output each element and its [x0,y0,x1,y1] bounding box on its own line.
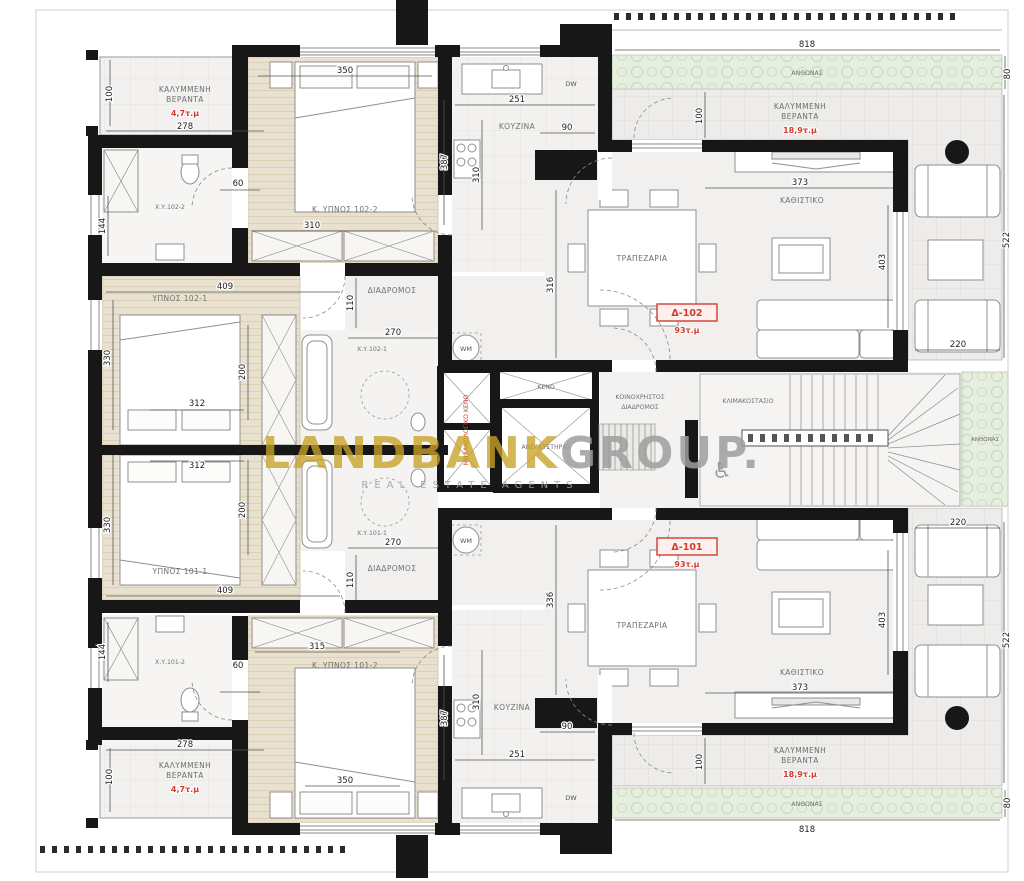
planter-right-label: ΑΝΘΩΝΑΣ [971,437,1000,443]
svg-text:315: 315 [309,642,325,652]
svg-text:270: 270 [385,328,401,338]
unit-top-area: 93τ.μ [674,326,699,335]
kitchen-top-label: ΚΟΥΖΙΝΑ [499,122,536,131]
svg-text:144: 144 [98,644,108,660]
svg-text:60: 60 [233,179,244,189]
common-corridor-label-2: ΔΙΑΔΡΟΜΟΣ [621,404,658,411]
veranda-big-top-l1: ΚΑΛΥΜΜΕΝΗ [774,102,826,111]
svg-text:387: 387 [440,154,450,170]
living-bottom-label: ΚΑΘΙΣΤΙΚΟ [780,668,824,677]
floor-plan-canvas: WM WM ♿ [0,0,1024,881]
veranda-big-bottom-area: 18,9τ.μ [783,770,817,779]
svg-text:403: 403 [878,612,888,628]
svg-text:818: 818 [799,40,815,50]
dining-bottom-label: ΤΡΑΠΕΖΑΡΙΑ [616,621,668,630]
svg-text:409: 409 [217,282,233,292]
planter-top-label: ΑΝΘΩΝΑΣ [791,70,822,77]
svg-text:312: 312 [189,461,205,471]
svg-text:350: 350 [337,66,353,76]
bed2-top-label: Κ. ΥΠΝΟΣ 102-2 [312,205,378,214]
veranda-small-bottom-l2: ΒΕΡΑΝΤΑ [166,771,204,780]
svg-text:220: 220 [950,518,966,528]
svg-text:330: 330 [103,517,113,533]
svg-text:100: 100 [695,108,705,124]
veranda-small-bottom-area: 4,7τ.μ [171,785,199,794]
svg-text:387: 387 [440,710,450,726]
kitchen-bottom-label: ΚΟΥΖΙΝΑ [494,703,531,712]
svg-text:310: 310 [304,221,320,231]
svg-text:100: 100 [105,769,115,785]
svg-text:350: 350 [337,776,353,786]
svg-text:100: 100 [105,86,115,102]
svg-text:310: 310 [472,694,482,710]
dw-top-label: DW [565,80,577,88]
svg-text:200: 200 [238,364,248,380]
planter-bottom-label: ΑΝΘΩΝΑΣ [791,801,822,808]
svg-text:200: 200 [238,502,248,518]
veranda-small-top-l1: ΚΑΛΥΜΜΕΝΗ [159,85,211,94]
watermark-brand2: GROUP. [560,428,762,479]
svg-text:251: 251 [509,750,525,760]
svg-text:110: 110 [346,572,356,588]
unit-bottom-area: 93τ.μ [674,560,699,569]
unit-top: Δ-102 [671,308,702,319]
svg-text:251: 251 [509,95,525,105]
svg-text:80: 80 [1003,69,1013,80]
corridor-bottom-label: ΔΙΑΔΡΟΜΟΣ [368,564,417,573]
corridor-top-label: ΔΙΑΔΡΟΜΟΣ [368,286,417,295]
living-top-label: ΚΑΘΙΣΤΙΚΟ [780,196,824,205]
svg-text:278: 278 [177,740,193,750]
bed2-bottom-label: Κ. ΥΠΝΟΣ 101-2 [312,661,378,670]
svg-text:60: 60 [233,661,244,671]
svg-text:522: 522 [1002,232,1012,248]
veranda-small-top-l2: ΒΕΡΑΝΤΑ [166,95,204,104]
floor-plan-page: WM WM ♿ [0,0,1024,881]
svg-text:278: 278 [177,122,193,132]
veranda-small-top-area: 4,7τ.μ [171,109,199,118]
veranda-big-top-area: 18,9τ.μ [783,126,817,135]
svg-text:310: 310 [472,167,482,183]
svg-text:LANDBANKGROUP.: LANDBANKGROUP. [262,428,762,479]
bed1-bottom-label: ΥΠΝΟΣ 101-1 [151,567,207,576]
stairwell-label: ΚΛΙΜΑΚΟΣΤΑΣΙΟ [722,398,773,405]
svg-text:312: 312 [189,399,205,409]
watermark-tagline: REAL ESTATE AGENTS [361,480,578,491]
bath1-top-label: Χ.Υ.102-1 [357,346,387,353]
bath2-top-label: Χ.Υ.102-2 [155,204,185,211]
watermark-brand: LANDBANK [262,428,560,479]
svg-text:90: 90 [562,722,573,732]
svg-text:409: 409 [217,586,233,596]
unit-bottom: Δ-101 [671,542,702,553]
wm-top-label: WM [460,345,472,353]
svg-text:110: 110 [346,295,356,311]
svg-text:80: 80 [1003,798,1013,809]
svg-text:90: 90 [562,123,573,133]
bed1-top-label: ΥΠΝΟΣ 102-1 [151,294,207,303]
svg-text:818: 818 [799,825,815,835]
veranda-big-bottom-l1: ΚΑΛΥΜΜΕΝΗ [774,746,826,755]
veranda-big-top-l2: ΒΕΡΑΝΤΑ [781,112,819,121]
svg-text:100: 100 [695,754,705,770]
svg-text:144: 144 [98,218,108,234]
veranda-big-bottom-l2: ΒΕΡΑΝΤΑ [781,756,819,765]
svg-text:330: 330 [103,350,113,366]
wm-bottom-label: WM [460,537,472,545]
common-corridor-label-1: ΚΟΙΝΟΧΡΗΣΤΟΣ [615,394,664,401]
svg-text:270: 270 [385,538,401,548]
svg-text:336: 336 [546,592,556,608]
dining-top-label: ΤΡΑΠΕΖΑΡΙΑ [616,254,668,263]
bath2-bottom-label: Χ.Υ.101-2 [155,659,185,666]
svg-text:373: 373 [792,178,808,188]
veranda-small-bottom-l1: ΚΑΛΥΜΜΕΝΗ [159,761,211,770]
dw-bottom-label: DW [565,794,577,802]
svg-text:220: 220 [950,340,966,350]
svg-text:522: 522 [1002,632,1012,648]
svg-text:373: 373 [792,683,808,693]
svg-text:403: 403 [878,254,888,270]
bath1-bottom-label: Χ.Υ.101-1 [357,530,387,537]
void-label: ΚΕΝΟ [537,384,555,391]
svg-text:316: 316 [546,277,556,293]
